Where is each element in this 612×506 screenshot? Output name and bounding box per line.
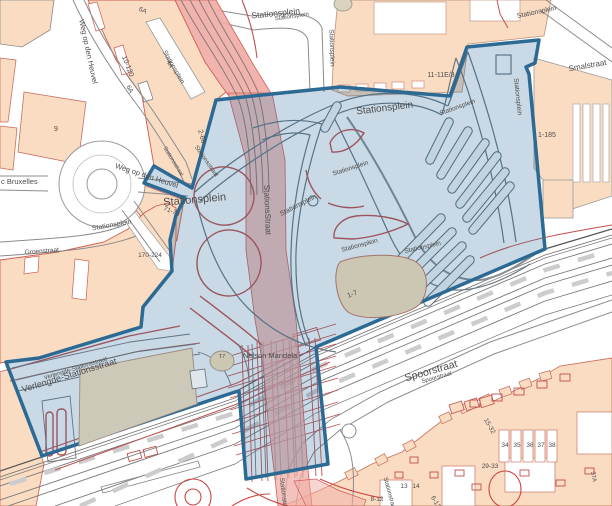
svg-text:34: 34 (501, 442, 509, 449)
svg-text:Stationsplein: Stationsplein (327, 29, 335, 67)
svg-text:1-185: 1-185 (538, 132, 556, 139)
svg-text:T7: T7 (219, 354, 225, 360)
svg-text:StationsStraat: StationsStraat (262, 185, 273, 236)
svg-text:38: 38 (548, 442, 556, 449)
svg-text:170-224: 170-224 (138, 252, 162, 259)
svg-text:11-11E/3: 11-11E/3 (427, 72, 454, 79)
svg-text:Nelson Mandela: Nelson Mandela (243, 351, 298, 360)
svg-text:37: 37 (537, 442, 545, 449)
svg-text:13: 13 (400, 483, 408, 490)
svg-text:8-12: 8-12 (370, 496, 383, 503)
svg-text:c Bruxelles: c Bruxelles (1, 177, 38, 186)
svg-text:35: 35 (513, 442, 521, 449)
svg-text:36: 36 (526, 442, 534, 449)
svg-text:29-33: 29-33 (482, 463, 499, 470)
svg-text:9: 9 (54, 126, 58, 133)
svg-text:14: 14 (412, 483, 420, 490)
